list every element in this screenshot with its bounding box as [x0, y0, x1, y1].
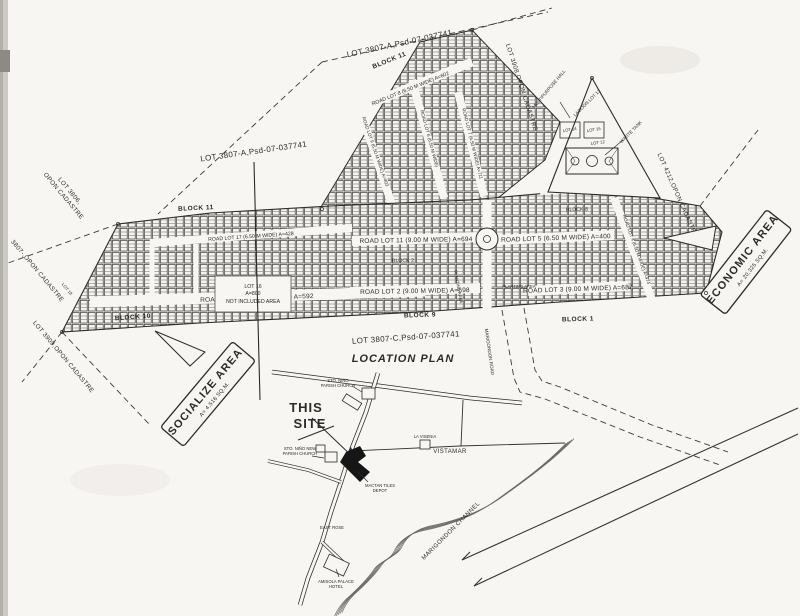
block-label: BLOCK 2	[392, 258, 414, 264]
plan-canvas: BLOCK 11 ROAD LOT 8 (6.50 M WIDE) A=602 …	[0, 0, 800, 616]
socialize-area-title: SOCIALIZE AREA	[166, 346, 245, 437]
socialize-area-callout: SOCIALIZE AREA A= 4,516 SQ.M.	[155, 331, 255, 447]
marigondon-channel-label: MARIGONDON CHANNEL	[421, 501, 482, 562]
roundabout	[476, 228, 498, 250]
church-label-line2: PARISH CHURCH	[321, 383, 356, 388]
block-label: BLOCK 9	[404, 311, 436, 319]
plan-title-left: LOT 3807-A,Psd-07-037741	[200, 140, 308, 164]
multipurpose-hall-label: MULTIPURPOSE HALL	[531, 68, 566, 109]
marigondon-road-label: MARIGONDON ROAD	[484, 328, 496, 376]
proposed-road-dashed	[502, 308, 728, 465]
block-label: BLOCK 11	[178, 204, 214, 213]
main-lot-body: ROAD LOT 19 (6.50 M WIDE) A=592 ROAD LOT…	[61, 185, 722, 332]
block-label: BLOCK 11	[372, 51, 408, 71]
lot16-number: LOT 16	[244, 284, 261, 290]
tiles-depot-label-line2: DEPOT	[373, 488, 388, 493]
scanned-subdivision-plan-document: BLOCK 11 ROAD LOT 8 (6.50 M WIDE) A=602 …	[0, 0, 800, 616]
lot16-not-included-area: LOT 16 A=800 NOT INCLUDED AREA	[215, 276, 291, 312]
hotel-label-line2: HOTEL	[329, 584, 344, 589]
vistamar-label: VISTAMAR	[433, 449, 467, 455]
lot-18-label: LOT 18	[61, 282, 74, 296]
diagonal-highway	[462, 408, 798, 586]
lot16-area: A=800	[245, 291, 260, 297]
lot16-note: NOT INCLUDED AREA	[226, 299, 281, 305]
planting-area-label: PLANTING AREA	[502, 284, 535, 289]
location-plan: LOCATION PLAN MARIGONDON ROAD	[268, 308, 798, 616]
location-plan-title: LOCATION PLAN	[352, 353, 455, 365]
block-label: BLOCK 8	[566, 207, 588, 214]
plan-title-bottom: LOT 3807-C,Psd-07-037741	[352, 329, 461, 346]
new-church-label-line2: PARISH CHURCH	[283, 451, 318, 456]
this-site-label-line2: SITE	[294, 416, 327, 431]
la-visenia-label: LA VISENIA	[414, 434, 437, 439]
east-rose-label: EAST ROSE	[320, 525, 344, 530]
block-label: BLOCK 1	[562, 315, 594, 323]
this-site-label-line1: THIS	[289, 400, 323, 415]
lot-3807-boundary-label: 3807-,OPON CADASTRE	[9, 239, 65, 304]
